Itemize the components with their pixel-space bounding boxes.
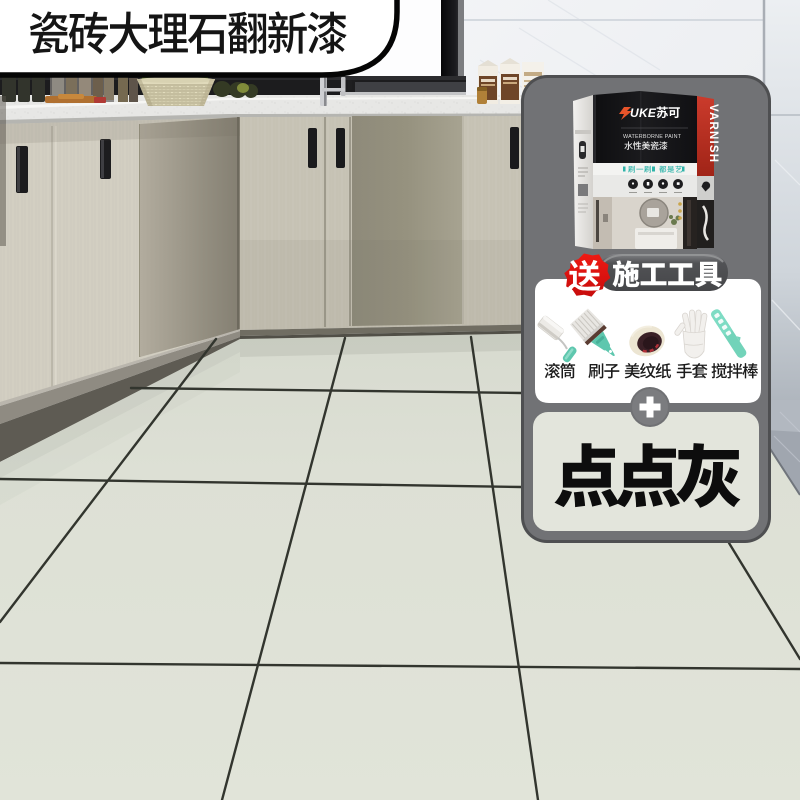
svg-text:WATERBORNE PAINT: WATERBORNE PAINT — [623, 134, 682, 140]
svg-text:UKE: UKE — [630, 106, 657, 120]
svg-text:VARNISH: VARNISH — [707, 104, 719, 163]
